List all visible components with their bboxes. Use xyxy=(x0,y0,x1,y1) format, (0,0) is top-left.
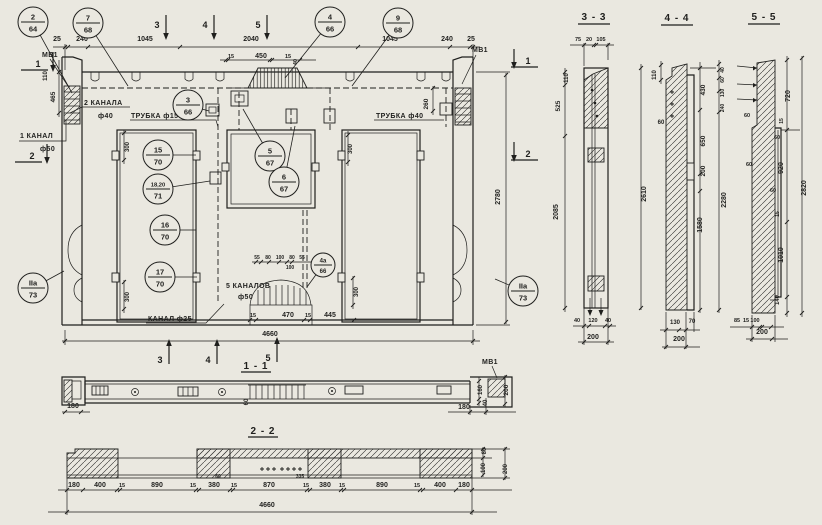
dim-label: 2780 xyxy=(495,189,502,205)
dim-label: 650 xyxy=(700,135,707,146)
dim-label: 40 xyxy=(605,318,611,324)
dim-label: 15 xyxy=(250,313,256,319)
dim-label: 180 xyxy=(458,404,470,411)
dim-label: 15 xyxy=(228,54,234,60)
section-5-5-title: 5 - 5 xyxy=(751,12,776,23)
dim-label: 335 xyxy=(296,474,305,480)
dim-label: 890 xyxy=(151,482,163,489)
section-cut-mark: 3 xyxy=(157,339,171,365)
dim-label: 2040 xyxy=(243,36,259,43)
callout-leader xyxy=(307,275,316,287)
callout-mark: 1770 xyxy=(145,262,197,292)
dim-label: 400 xyxy=(434,482,446,489)
dim-label: 920 xyxy=(778,162,785,174)
callout-leader xyxy=(243,109,263,143)
s55-layer-leaders xyxy=(737,66,757,100)
dim-label: 200 xyxy=(503,384,510,395)
dim-label: 110 xyxy=(43,71,49,81)
dim-label: 450 xyxy=(255,53,267,60)
section-cut-number: 1 xyxy=(525,56,530,66)
dim-label: 100 xyxy=(750,318,759,324)
callout-position-number: IIа xyxy=(519,282,528,291)
dim-label: 60 xyxy=(744,113,750,119)
dim-label: 4660 xyxy=(259,502,275,509)
callout-leader xyxy=(495,279,509,285)
callout-position-number: 7 xyxy=(86,14,90,23)
mv1-label-right: МВ1 xyxy=(472,47,488,54)
main-elevation: МВ1 МВ1 2 КАНАЛА ф40 ТРУБКА ф15 ТРУБКА ф… xyxy=(19,44,510,345)
callout-position-number: 3 xyxy=(186,96,190,105)
callout-sheet-number: 68 xyxy=(84,26,92,35)
dim-label: 470 xyxy=(282,312,294,319)
dim-label: 130 xyxy=(670,320,681,326)
section-cut-number: 3 xyxy=(157,355,162,365)
dim-label: 60 xyxy=(770,188,776,194)
dim-label: 60 xyxy=(746,162,752,168)
dim-label: 15 xyxy=(339,483,345,489)
callout-sheet-number: 73 xyxy=(519,294,527,303)
dim-label: 60 xyxy=(720,77,726,83)
channels2-label: 2 КАНАЛА xyxy=(84,100,123,107)
right-lift-recess xyxy=(453,225,467,302)
section-cut-mark: 3 xyxy=(154,15,168,40)
callout-sheet-number: 66 xyxy=(320,269,327,275)
channel25-label: КАНАЛ ф25 xyxy=(148,316,192,323)
callout-mark: 366 xyxy=(173,90,209,120)
dim-label: 40 xyxy=(483,399,489,406)
dim-label: 300 xyxy=(354,286,360,297)
dim-label: 15 xyxy=(779,118,785,124)
right-embed-mv1 xyxy=(455,88,471,125)
dim-label: 60 xyxy=(774,135,780,141)
callout-sheet-number: 70 xyxy=(156,280,164,289)
callout-position-number: 18,20 xyxy=(151,183,166,189)
dim-label: 80 xyxy=(289,255,295,261)
section-cut-number: 5 xyxy=(255,20,260,30)
dim-label: 200 xyxy=(503,463,509,474)
section-4-4-title: 4 - 4 xyxy=(664,13,689,24)
dim-label: 120 xyxy=(588,318,597,324)
dim-label: 60 xyxy=(244,398,250,405)
section-cut-mark: 2 xyxy=(511,142,538,162)
dim-label: 2280 xyxy=(721,192,728,208)
section-2-2: 2 - 2 xyxy=(48,426,512,515)
dim-label: 240 xyxy=(720,104,726,113)
section-cut-arrow xyxy=(264,33,270,40)
section-cut-mark: 4 xyxy=(205,339,219,365)
dim-label: 465 xyxy=(50,91,57,102)
callout-sheet-number: 67 xyxy=(266,159,274,168)
callout-position-number: 9 xyxy=(396,14,400,23)
dim-label: 870 xyxy=(263,482,275,489)
section-4-4: 4 - 4 xyxy=(659,13,721,349)
callout-leader xyxy=(40,35,72,93)
top-channel-block xyxy=(248,68,307,88)
dim-label: 200 xyxy=(673,336,685,343)
dim-label: 40 xyxy=(720,67,726,73)
dim-label: 15 xyxy=(775,211,781,217)
section-cut-mark: 4 xyxy=(202,15,216,40)
dim-label: 240 xyxy=(441,36,453,43)
dim-label: 1010 xyxy=(778,247,785,263)
dim-label: 40 xyxy=(574,318,580,324)
left-lift-recess xyxy=(68,225,82,302)
dim-label: 180 xyxy=(458,482,470,489)
dim-label: 200 xyxy=(587,334,599,341)
dim-label: 200 xyxy=(700,165,707,176)
dim-label: 140 xyxy=(775,294,781,305)
callout-sheet-number: 73 xyxy=(29,291,37,300)
callout-sheet-number: 64 xyxy=(29,25,38,34)
junction-boxes xyxy=(206,91,452,184)
callout-leader xyxy=(173,181,210,187)
section-cut-number: 2 xyxy=(525,149,530,159)
section-cut-arrow xyxy=(511,155,517,162)
dim-label: 200 xyxy=(756,329,768,336)
dim-label: 130 xyxy=(720,89,726,98)
section-cut-arrow xyxy=(166,339,172,346)
dim-label: 720 xyxy=(785,90,792,102)
section-cut-arrow xyxy=(214,339,220,346)
dim-label: 890 xyxy=(376,482,388,489)
callout-sheet-number: 67 xyxy=(280,185,288,194)
callout-leader xyxy=(287,126,295,167)
callouts-layer: 264768466968366157018,207156766716701770… xyxy=(18,7,538,306)
dim-label: 380 xyxy=(208,482,220,489)
tube40-label: ТРУБКА ф40 xyxy=(376,113,423,120)
drawing-sheet: МВ1 МВ1 2 КАНАЛА ф40 ТРУБКА ф15 ТРУБКА ф… xyxy=(0,0,822,525)
section-cut-number: 5 xyxy=(265,353,270,363)
s11-inner-details xyxy=(92,385,451,399)
dim-label: 70 xyxy=(689,319,696,325)
callout-mark: 466 xyxy=(285,7,345,78)
section-cut-mark: 1 xyxy=(511,49,538,69)
section-cut-arrow xyxy=(50,65,56,72)
callout-position-number: 16 xyxy=(161,221,169,230)
dim-label: 2820 xyxy=(801,180,808,196)
mv1-label-s11: МВ1 xyxy=(482,359,498,366)
section-cut-arrow xyxy=(163,33,169,40)
dim-label: 20 xyxy=(586,37,592,43)
channels2-dia: ф40 xyxy=(98,113,113,120)
dim-label: 105 xyxy=(596,37,605,43)
dim-label: 430 xyxy=(700,84,707,95)
dim-label: 260 xyxy=(423,98,430,109)
dim-label: 1045 xyxy=(137,36,153,43)
dim-label: 25 xyxy=(53,36,61,43)
callout-position-number: 5 xyxy=(268,147,272,156)
panel-drawing: МВ1 МВ1 2 КАНАЛА ф40 ТРУБКА ф15 ТРУБКА ф… xyxy=(0,0,822,525)
dim-label: 15 xyxy=(119,483,125,489)
dim-label: 180 xyxy=(67,403,79,410)
dim-label: 100 xyxy=(286,265,295,271)
dim-label: 100 xyxy=(276,255,285,261)
section-cut-arrow xyxy=(274,337,280,344)
dim-label: 55 xyxy=(299,255,305,261)
dim-label: 15 xyxy=(231,483,237,489)
dim-label: 2610 xyxy=(641,186,648,202)
callout-mark: 567 xyxy=(243,109,285,171)
dim-label: 15 xyxy=(303,483,309,489)
callout-position-number: 17 xyxy=(156,268,164,277)
section-cut-number: 1 xyxy=(35,59,40,69)
callout-leader xyxy=(96,36,128,86)
dim-label: 15 xyxy=(414,483,420,489)
dim-label: 300 xyxy=(348,143,354,154)
callout-mark: IIа73 xyxy=(18,271,64,303)
dim-label: 180 xyxy=(68,482,80,489)
dim-label: 2085 xyxy=(553,204,560,220)
dim-label: 300 xyxy=(125,291,131,302)
dim-label: 400 xyxy=(94,482,106,489)
dim-label: 80 xyxy=(265,255,271,261)
section-cut-number: 4 xyxy=(202,20,207,30)
callout-sheet-number: 70 xyxy=(154,158,162,167)
callout-sheet-number: 68 xyxy=(394,26,402,35)
callout-position-number: IIа xyxy=(29,279,38,288)
s22-channel-cluster xyxy=(260,467,302,471)
section-2-2-title: 2 - 2 xyxy=(250,426,275,437)
callout-sheet-number: 66 xyxy=(184,108,192,117)
dim-label: 15 xyxy=(743,318,749,324)
callout-leader xyxy=(46,271,64,281)
dim-label: 85 xyxy=(734,318,740,324)
section-cut-number: 2 xyxy=(29,151,34,161)
callout-sheet-number: 70 xyxy=(161,233,169,242)
dim-label: 110 xyxy=(564,73,570,83)
dim-label: 525 xyxy=(555,100,562,111)
callout-mark: 18,2071 xyxy=(143,174,210,204)
callout-mark: IIа73 xyxy=(495,276,538,306)
callout-mark: 4а66 xyxy=(307,253,335,287)
section-5-5: 5 - 5 xyxy=(730,12,804,342)
dim-label: 15 xyxy=(285,54,291,60)
callout-position-number: 15 xyxy=(154,146,162,155)
callout-sheet-number: 71 xyxy=(154,192,162,201)
dim-label: 4660 xyxy=(262,331,278,338)
dim-label: 60 xyxy=(658,120,665,126)
section-cut-arrow xyxy=(511,62,517,69)
dim-label: 15 xyxy=(305,313,311,319)
callout-position-number: 2 xyxy=(31,13,35,22)
dim-label: 160 xyxy=(478,384,484,395)
callout-mark: 1570 xyxy=(143,140,196,170)
callout-position-number: 6 xyxy=(282,173,286,182)
callout-leader xyxy=(352,35,389,86)
dim-label: 445 xyxy=(324,312,336,319)
channels5-dia: ф50 xyxy=(238,294,253,301)
dim-label: 15 xyxy=(190,483,196,489)
dim-label: 300 xyxy=(125,141,131,152)
section-3-3: 3 - 3 xyxy=(563,12,643,345)
channel1-label: 1 КАНАЛ xyxy=(20,133,53,140)
dim-label: 100 xyxy=(481,462,487,473)
section-cut-number: 3 xyxy=(154,20,159,30)
section-cut-arrow xyxy=(211,33,217,40)
section-1-1: 1 - 1 МВ1 xyxy=(62,359,516,415)
tube15-label: ТРУБКА ф15 xyxy=(131,113,178,120)
section-cut-arrow xyxy=(44,157,50,164)
dim-label: 55 xyxy=(254,255,260,261)
dim-label: 380 xyxy=(319,482,331,489)
dim-label: 110 xyxy=(652,70,658,80)
callout-mark: 1670 xyxy=(150,215,196,245)
dim-label: 1580 xyxy=(697,217,704,233)
section-3-3-title: 3 - 3 xyxy=(581,12,606,23)
section-cut-number: 4 xyxy=(205,355,210,365)
callout-sheet-number: 66 xyxy=(326,25,334,34)
dim-label: 25 xyxy=(467,36,475,43)
callout-position-number: 4а xyxy=(320,259,327,265)
dim-label: 75 xyxy=(575,37,581,43)
dim-label: 60 xyxy=(215,474,221,480)
dim-label: 80 xyxy=(482,447,488,454)
channels5-label: 5 КАНАЛОВ xyxy=(226,283,270,290)
